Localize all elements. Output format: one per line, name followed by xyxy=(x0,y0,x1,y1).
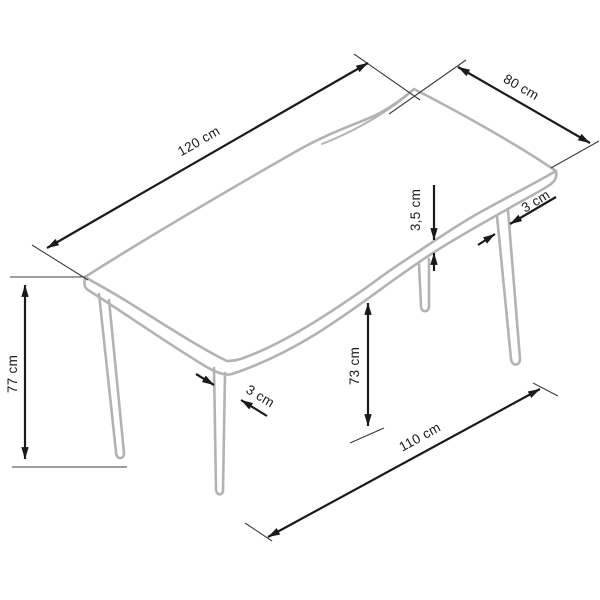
extension-span-right xyxy=(533,383,558,396)
table-leg-right xyxy=(497,210,520,365)
label-leg-right-3: 3 cm xyxy=(519,187,553,216)
dimension-labels: 120 cm 80 cm 3,5 cm 3 cm 3 cm 77 cm 73 c… xyxy=(5,71,553,455)
label-span-110: 110 cm xyxy=(396,420,443,455)
dim-line-span-110 xyxy=(268,389,540,537)
extension-width-right xyxy=(551,141,599,168)
table-dimension-diagram: 120 cm 80 cm 3,5 cm 3 cm 3 cm 77 cm 73 c… xyxy=(0,0,600,600)
dimension-drawing-canvas: 120 cm 80 cm 3,5 cm 3 cm 3 cm 77 cm 73 c… xyxy=(0,0,600,600)
table-leg-front xyxy=(214,368,225,494)
table-drawing xyxy=(84,89,556,494)
label-height-77: 77 cm xyxy=(5,355,20,393)
dim-line-width-80 xyxy=(458,67,590,143)
dim-line-length-120 xyxy=(47,63,368,248)
extension-clearance-bottom xyxy=(350,428,384,443)
tabletop-outline xyxy=(85,89,556,361)
table-leg-back-left xyxy=(99,294,124,458)
extension-span-left xyxy=(245,523,272,541)
label-clearance-73: 73 cm xyxy=(347,347,362,385)
extension-length-left xyxy=(32,245,88,280)
dim-line-leg-front-a xyxy=(196,374,214,385)
dim-line-leg-right-a xyxy=(478,234,495,245)
label-thickness-35: 3,5 cm xyxy=(408,189,423,231)
label-length-120: 120 cm xyxy=(175,123,222,159)
label-leg-front-3: 3 cm xyxy=(243,382,277,411)
label-width-80: 80 cm xyxy=(501,71,542,103)
extension-length-right xyxy=(354,54,420,100)
tabletop-thickness-edge xyxy=(84,172,556,375)
table-leg-back xyxy=(419,259,429,311)
